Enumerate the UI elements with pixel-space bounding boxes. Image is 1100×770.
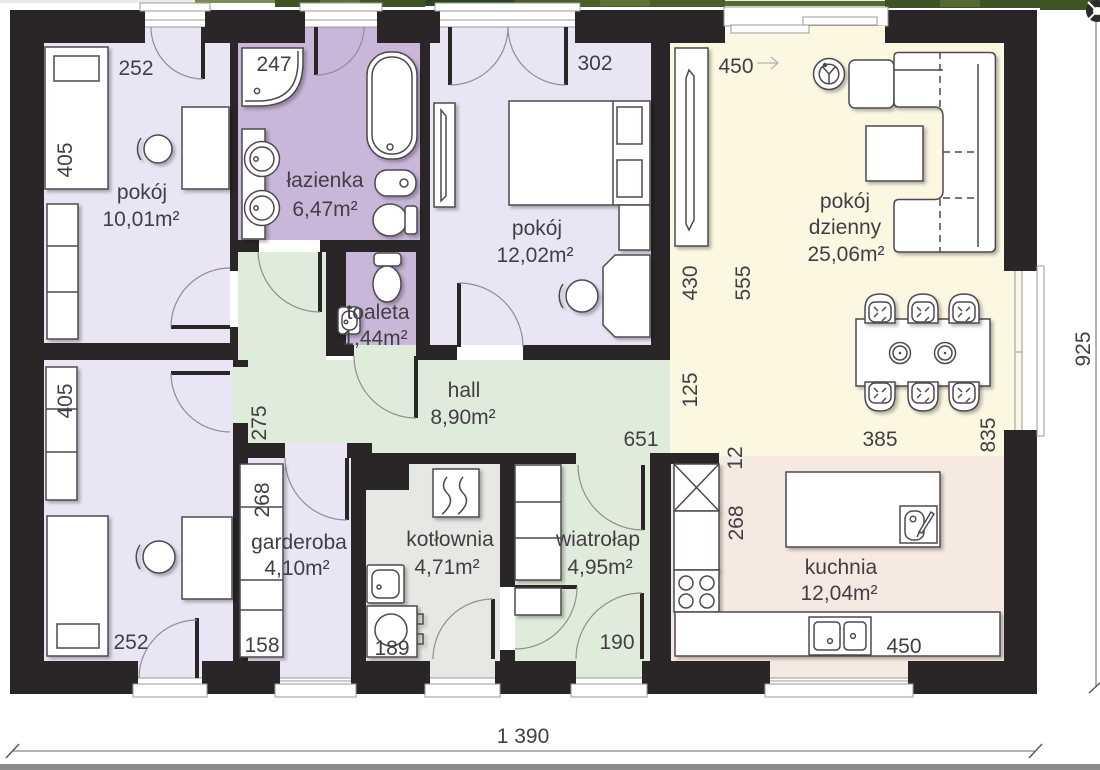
svg-text:835: 835 bbox=[977, 417, 1000, 452]
svg-text:190: 190 bbox=[599, 631, 634, 654]
svg-text:252: 252 bbox=[118, 57, 153, 80]
svg-text:łazienka: łazienka bbox=[286, 169, 363, 192]
svg-text:wiatrołap: wiatrołap bbox=[555, 528, 640, 551]
svg-text:268: 268 bbox=[251, 482, 274, 517]
svg-text:toaleta: toaleta bbox=[346, 301, 409, 324]
svg-text:12,04m²: 12,04m² bbox=[800, 582, 877, 605]
svg-text:450: 450 bbox=[718, 55, 753, 78]
svg-text:4,95m²: 4,95m² bbox=[567, 556, 632, 579]
svg-text:925: 925 bbox=[1072, 331, 1095, 366]
svg-text:pokój: pokój bbox=[117, 181, 167, 204]
svg-text:1 390: 1 390 bbox=[497, 725, 550, 748]
svg-text:10,01m²: 10,01m² bbox=[102, 208, 179, 231]
svg-text:385: 385 bbox=[862, 428, 897, 451]
svg-text:8,90m²: 8,90m² bbox=[430, 406, 495, 429]
svg-text:247: 247 bbox=[256, 53, 291, 76]
svg-text:pokój: pokój bbox=[512, 217, 562, 240]
svg-text:hall: hall bbox=[448, 379, 481, 402]
svg-text:6,47m²: 6,47m² bbox=[292, 198, 357, 221]
svg-text:4,10m²: 4,10m² bbox=[264, 557, 329, 580]
svg-text:268: 268 bbox=[725, 505, 748, 540]
svg-text:12,02m²: 12,02m² bbox=[496, 244, 573, 267]
svg-text:1,44m²: 1,44m² bbox=[342, 327, 407, 350]
svg-text:kuchnia: kuchnia bbox=[805, 556, 878, 579]
svg-text:kotłownia: kotłownia bbox=[406, 528, 494, 551]
svg-text:dzienny: dzienny bbox=[809, 216, 882, 239]
svg-text:450: 450 bbox=[886, 635, 921, 658]
svg-text:garderoba: garderoba bbox=[251, 531, 347, 554]
svg-text:405: 405 bbox=[54, 383, 77, 418]
svg-text:pokój: pokój bbox=[820, 190, 870, 213]
svg-text:430: 430 bbox=[679, 265, 702, 300]
svg-text:302: 302 bbox=[577, 52, 612, 75]
svg-text:405: 405 bbox=[54, 142, 77, 177]
svg-text:158: 158 bbox=[244, 634, 279, 657]
svg-text:555: 555 bbox=[732, 265, 755, 300]
svg-text:651: 651 bbox=[623, 428, 658, 451]
svg-text:189: 189 bbox=[374, 637, 409, 660]
svg-text:275: 275 bbox=[248, 405, 271, 440]
svg-text:4,71m²: 4,71m² bbox=[414, 556, 479, 579]
svg-text:25,06m²: 25,06m² bbox=[807, 243, 884, 266]
svg-text:252: 252 bbox=[113, 631, 148, 654]
svg-text:125: 125 bbox=[679, 372, 702, 407]
svg-text:12: 12 bbox=[724, 446, 747, 469]
